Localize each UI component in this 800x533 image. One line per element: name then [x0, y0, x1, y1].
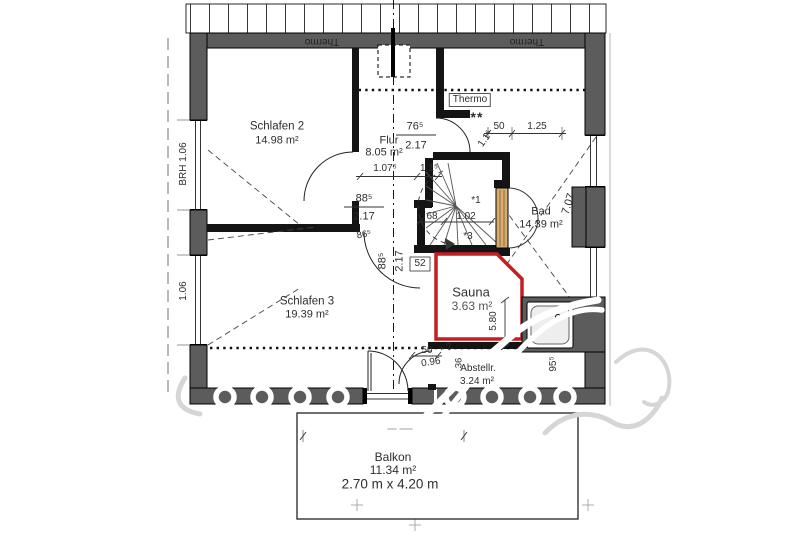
dim-door-c-height: 2.17 [395, 250, 406, 271]
dim-sauna-580: 5.80 [489, 311, 499, 330]
room-area-sauna: 3.63 m² [452, 300, 493, 312]
door-window-jambs [363, 388, 412, 404]
dim-brh-left-bottom: 1.06 [179, 281, 189, 300]
dim-865: 86⁵ [356, 229, 372, 241]
room-label-abstellraum: Abstellr. [460, 364, 496, 374]
note-3: *3 [463, 232, 472, 242]
window-left-bottom [190, 255, 207, 345]
dim-door-a-height: 2.17 [405, 141, 426, 152]
dim-50b: 50 [421, 346, 432, 356]
dim-door-b-height: 2.17 [353, 212, 374, 223]
dim-flur-length: 1.07⁵ [373, 164, 397, 174]
thermo-label-wall-right: Thermo [510, 36, 544, 46]
room-area-abstellraum: 3.24 m² [460, 377, 494, 387]
floorplan-page: Schlafen 2 14.98 m² Flur 8.05 m² Bad 14.… [0, 0, 800, 533]
thermo-label-niche: Thermo [449, 93, 491, 107]
room-size-balkon: 2.70 m x 4.20 m [342, 477, 439, 491]
dim-brh-left-top: BRH 1.06 [179, 142, 189, 185]
window-right-top [585, 135, 605, 187]
note-1: *1 [471, 196, 480, 206]
window-right-bottom [585, 247, 605, 300]
room-area-schlafen3: 19.39 m² [285, 310, 328, 321]
dim-door-c-width: 88⁵ [378, 253, 389, 270]
survey-crosses [351, 499, 594, 531]
roof-hatch-band [186, 4, 606, 33]
door-arc-schlafen2 [304, 152, 353, 201]
room-label-flur: Flur [380, 136, 399, 147]
room-area-bad: 14.39 m² [519, 220, 562, 231]
dim-36: 36 [454, 358, 464, 369]
dim-stair-102: 1.02 [456, 212, 475, 222]
dim-115a: 1.1⁵ [420, 164, 438, 174]
dim-stair-68: 68 [426, 212, 437, 222]
dim-125: 1.25 [527, 122, 546, 132]
balcony-door-glazing [367, 394, 408, 400]
room-area-schlafen2: 14.98 m² [255, 136, 298, 147]
door-arc-flur-bad [436, 118, 470, 152]
dim-955: 95⁵ [549, 356, 559, 371]
bad-door-leaf [496, 188, 508, 248]
room-area-flur: 8.05 m² [365, 148, 402, 159]
dim-50: 50 [493, 122, 504, 132]
room-label-schlafen3: Schlafen 3 [280, 296, 334, 308]
room-label-sauna: Sauna [452, 286, 490, 299]
dim-52: 52 [414, 259, 425, 269]
dim-door-b-width: 88⁵ [356, 194, 373, 205]
room-label-balkon: Balkon [375, 451, 412, 463]
dim-door-a-width: 76⁵ [407, 122, 424, 133]
note-stars: ** [471, 110, 484, 124]
door-arc-schlafen3 [364, 232, 420, 288]
thermo-label-wall-left: Thermo [305, 36, 339, 46]
window-left-top [190, 120, 207, 210]
room-label-schlafen2: Schlafen 2 [250, 121, 304, 133]
room-label-bad: Bad [531, 207, 551, 218]
room-area-balkon: 11.34 m² [370, 464, 416, 476]
